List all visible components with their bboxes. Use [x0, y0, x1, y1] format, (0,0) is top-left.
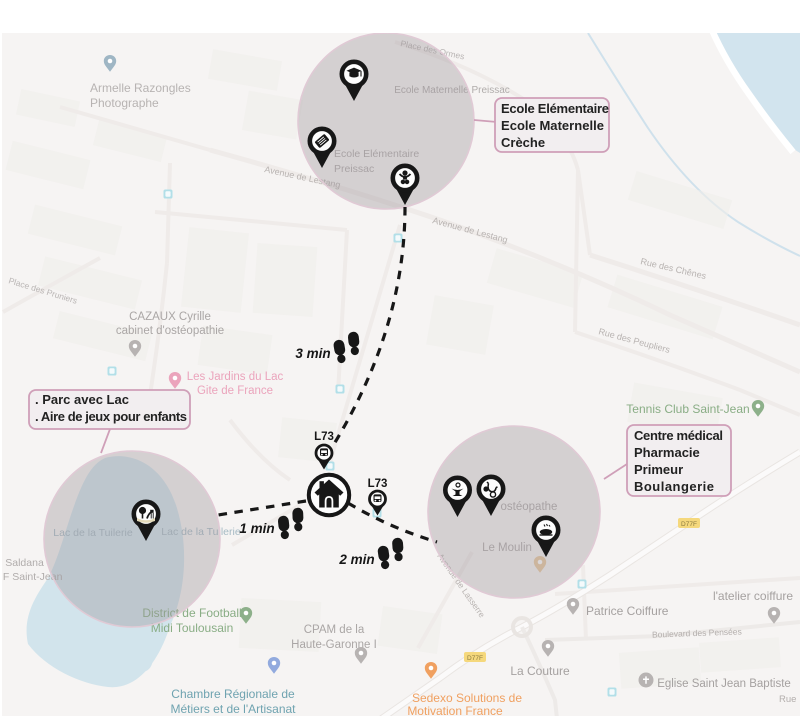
- svg-text:Photographe: Photographe: [90, 96, 159, 110]
- svg-text:Armelle Razongles: Armelle Razongles: [90, 81, 191, 95]
- svg-text:Les Jardins du Lac: Les Jardins du Lac: [187, 371, 284, 383]
- svg-text:. Parc avec Lac: . Parc avec Lac: [35, 392, 129, 407]
- svg-text:D77F: D77F: [467, 655, 483, 662]
- svg-text:L73: L73: [368, 478, 388, 490]
- svg-text:Motivation France: Motivation France: [407, 704, 503, 718]
- svg-text:Ecole Elémentaire: Ecole Elémentaire: [501, 101, 609, 116]
- svg-text:Primeur: Primeur: [634, 462, 683, 477]
- svg-text:3 min: 3 min: [295, 346, 330, 361]
- svg-text:1 min: 1 min: [239, 521, 274, 536]
- svg-text:Métiers et de l'Artisanat: Métiers et de l'Artisanat: [170, 702, 296, 716]
- svg-text:Pharmacie: Pharmacie: [634, 445, 700, 460]
- svg-text:L73: L73: [314, 431, 334, 443]
- svg-text:Rue: Rue: [779, 694, 796, 705]
- svg-text:Gite de France: Gite de France: [197, 385, 273, 397]
- svg-text:Patrice Coiffure: Patrice Coiffure: [586, 604, 669, 618]
- svg-text:l'atelier coiffure: l'atelier coiffure: [713, 589, 793, 603]
- svg-text:Sedexo Solutions de: Sedexo Solutions de: [412, 691, 522, 705]
- svg-text:CAZAUX Cyrille: CAZAUX Cyrille: [129, 311, 211, 323]
- svg-text:Ecole Maternelle: Ecole Maternelle: [501, 118, 604, 133]
- svg-text:i Saldana: i Saldana: [0, 557, 44, 569]
- svg-text:La Couture: La Couture: [510, 664, 570, 678]
- svg-text:D77F: D77F: [681, 521, 697, 528]
- svg-text:. Aire de jeux pour enfants: . Aire de jeux pour enfants: [35, 409, 187, 424]
- svg-text:Chambre Régionale de: Chambre Régionale de: [171, 687, 295, 701]
- svg-text:Eglise Saint Jean Baptiste: Eglise Saint Jean Baptiste: [657, 678, 791, 690]
- svg-text:2 min: 2 min: [338, 552, 374, 567]
- svg-text:Crèche: Crèche: [501, 135, 545, 150]
- svg-text:Midi Toulousain: Midi Toulousain: [151, 621, 234, 635]
- svg-text:Boulangerie: Boulangerie: [634, 479, 714, 494]
- svg-text:cabinet d'ostéopathie: cabinet d'ostéopathie: [116, 325, 224, 337]
- svg-text:Tennis Club Saint-Jean: Tennis Club Saint-Jean: [626, 402, 749, 416]
- svg-text:Centre médical: Centre médical: [634, 428, 723, 443]
- svg-text:CPAM de la: CPAM de la: [304, 624, 365, 636]
